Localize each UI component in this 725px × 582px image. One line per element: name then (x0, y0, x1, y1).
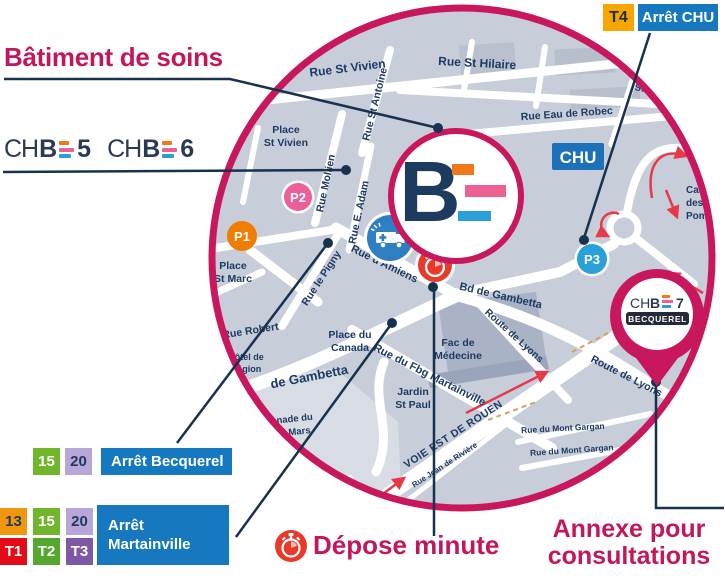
place-label: Canada (331, 342, 369, 354)
t4-line-badge: T4 (603, 4, 634, 31)
parking-p3: P3 (575, 242, 610, 277)
place-label: Médecine (434, 350, 482, 362)
parking-p2: P2 (282, 181, 315, 214)
svg-text:P2: P2 (290, 190, 306, 205)
svg-text:7: 7 (676, 295, 684, 311)
tram-t2-badge: T2 (33, 538, 60, 565)
parking-p1: P1 (227, 221, 257, 251)
depose-minute-legend-icon (275, 530, 307, 562)
page-title: Bâtiment de soins (4, 42, 223, 73)
place-label: St Paul (395, 399, 431, 411)
pin-becquerel-text: BECQUEREL (628, 314, 687, 324)
place-label: Place (219, 260, 247, 272)
chb5-dashes (59, 141, 74, 158)
arret-martainville-label: Arrêt Martainville (97, 505, 229, 565)
chb-logos: CHB 5 CHB 6 (4, 135, 194, 164)
annexe-consultations-label: Annexe pour consultations (533, 516, 725, 570)
chb6-logo: CHB 6 (107, 135, 194, 164)
becquerel-center-logo: B (391, 131, 521, 261)
svg-text:P3: P3 (584, 252, 600, 267)
svg-text:CHU: CHU (560, 148, 597, 167)
martainville-badges: 13 15 20 T1 T2 T3 (0, 508, 99, 565)
svg-text:P1: P1 (234, 229, 250, 244)
tram-t1-badge: T1 (0, 538, 27, 565)
bus-15-badge: 15 (33, 508, 60, 535)
chb5-logo: CHB 5 (4, 135, 91, 164)
svg-text:B: B (650, 295, 660, 311)
arret-chu-label: Arrêt CHU (638, 4, 718, 31)
logo-dash-pink (465, 185, 506, 197)
place-label: St Marc (214, 273, 252, 285)
arret-becquerel: 15 20 Arrêt Becquerel (33, 448, 232, 475)
logo-dash-orange (452, 164, 474, 175)
bus-15-badge: 15 (33, 448, 60, 475)
bus-20-badge: 20 (65, 448, 92, 475)
chb6-dashes (162, 141, 177, 158)
place-label: Place (272, 124, 300, 136)
arret-becquerel-label: Arrêt Becquerel (101, 448, 232, 475)
depose-minute-label: Dépose minute (313, 530, 499, 561)
map-canvas: Rue St Vivien Rue St Hilaire St Hi Rue E… (0, 0, 725, 582)
map-area: Rue St Vivien Rue St Hilaire St Hi Rue E… (0, 0, 725, 582)
place-label: St Vivien (264, 137, 308, 149)
chu-label: CHU (552, 143, 604, 170)
place-label: des (686, 198, 704, 209)
pin-chb-text: CH (630, 295, 650, 311)
bus-20-badge: 20 (66, 508, 93, 535)
b-letter: B (399, 145, 460, 240)
tram-t3-badge: T3 (66, 538, 93, 565)
logo-dash-blue (458, 211, 491, 221)
place-label: Place du (328, 329, 371, 341)
bus-13-badge: 13 (0, 508, 27, 535)
place-label: Fac de (441, 337, 474, 349)
place-label: Jardin (397, 386, 429, 398)
